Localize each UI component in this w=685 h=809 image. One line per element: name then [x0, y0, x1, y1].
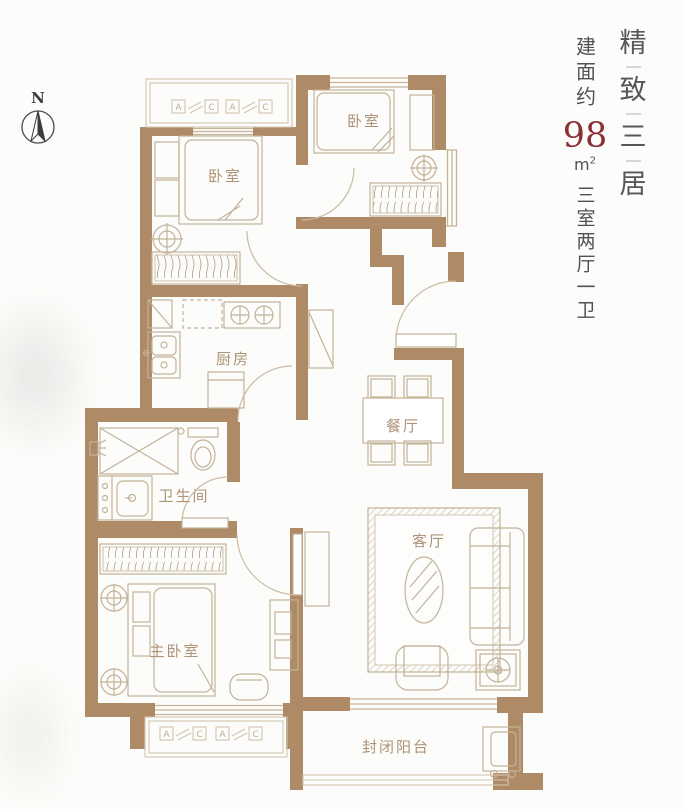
wardrobe-bedroom-right	[370, 183, 441, 216]
stove	[224, 302, 280, 328]
ac-marker: A C	[226, 100, 272, 113]
ac-bay-bottom: A C A C	[145, 717, 287, 757]
compass-needle-east	[38, 111, 45, 141]
room-label-bedroom-right: 卧室	[347, 112, 381, 130]
area-unit-base: m	[574, 155, 590, 174]
ac-marker: A C	[172, 100, 218, 113]
balcony-glazing	[303, 775, 508, 785]
furniture-master-bedroom	[100, 544, 298, 700]
bathroom-vanity	[98, 476, 152, 520]
compass: N	[22, 89, 54, 143]
shoe-cabinet	[309, 310, 333, 368]
furniture-bathroom	[90, 428, 218, 520]
window-living-balcony	[350, 699, 497, 709]
plan-title-char: 精	[620, 30, 647, 57]
room-label-living: 客厅	[412, 532, 446, 550]
room-label-bathroom: 卫生间	[158, 487, 209, 505]
ac-marker: A C	[216, 727, 262, 740]
compass-north-label: N	[31, 89, 45, 107]
room-label-dining: 餐厅	[386, 417, 420, 435]
svg-text:C: C	[262, 103, 268, 113]
bay-window-bedroom-right	[446, 150, 457, 226]
shower-area	[90, 428, 178, 474]
tv-cabinet	[305, 532, 329, 606]
svg-text:A: A	[229, 103, 236, 113]
door-arc-kitchen	[238, 366, 292, 420]
wardrobe-master	[100, 544, 226, 574]
fridge	[208, 372, 244, 408]
plan-title: 精 致 三 居	[618, 30, 648, 198]
furniture-bedroom-right	[314, 90, 441, 216]
window-bedroom-left-top	[193, 129, 253, 135]
svg-text:C: C	[208, 103, 214, 113]
wardrobe-bedroom-left	[152, 252, 240, 284]
title-separator	[626, 66, 641, 68]
room-label-balcony: 封闭阳台	[362, 738, 430, 756]
svg-text:C: C	[252, 730, 258, 740]
room-label-master: 主卧室	[149, 642, 200, 660]
furniture-bedroom-left	[151, 136, 262, 284]
room-label-bedroom-left: 卧室	[208, 167, 242, 185]
floorplan-page: A C A C A	[0, 0, 685, 809]
kitchen-sink	[143, 332, 180, 378]
window-master-bottom	[155, 706, 283, 715]
title-separator	[626, 160, 641, 162]
svg-text:A: A	[219, 730, 226, 740]
plan-title-char: 致	[620, 77, 647, 104]
ac-marker: A C	[160, 727, 206, 740]
window-bedroom-right-top	[330, 78, 408, 87]
plan-title-char: 居	[620, 171, 647, 198]
furniture-kitchen	[143, 300, 280, 408]
chair-master	[230, 674, 268, 700]
ac-bay-top: A C A C	[146, 79, 292, 127]
svg-text:A: A	[175, 103, 182, 113]
svg-text:A: A	[163, 730, 170, 740]
toilet	[178, 428, 218, 470]
plan-spec: 建面约 98 m2 三室两厅一卫	[564, 36, 606, 323]
area-unit: m2	[574, 155, 596, 174]
door-entry	[396, 281, 456, 347]
compass-needle-west	[31, 111, 38, 141]
door-arc-bedroom-right	[302, 168, 354, 220]
area-prefix: 建面约	[571, 36, 600, 111]
area-unit-exponent: 2	[590, 156, 596, 167]
door-arc-bedroom-left	[247, 231, 302, 286]
title-separator	[626, 113, 641, 115]
plan-title-char: 三	[620, 124, 647, 151]
svg-text:C: C	[196, 730, 202, 740]
area-value: 98	[563, 119, 608, 154]
layout-description: 三室两厅一卫	[572, 185, 599, 323]
room-label-kitchen: 厨房	[216, 350, 250, 368]
